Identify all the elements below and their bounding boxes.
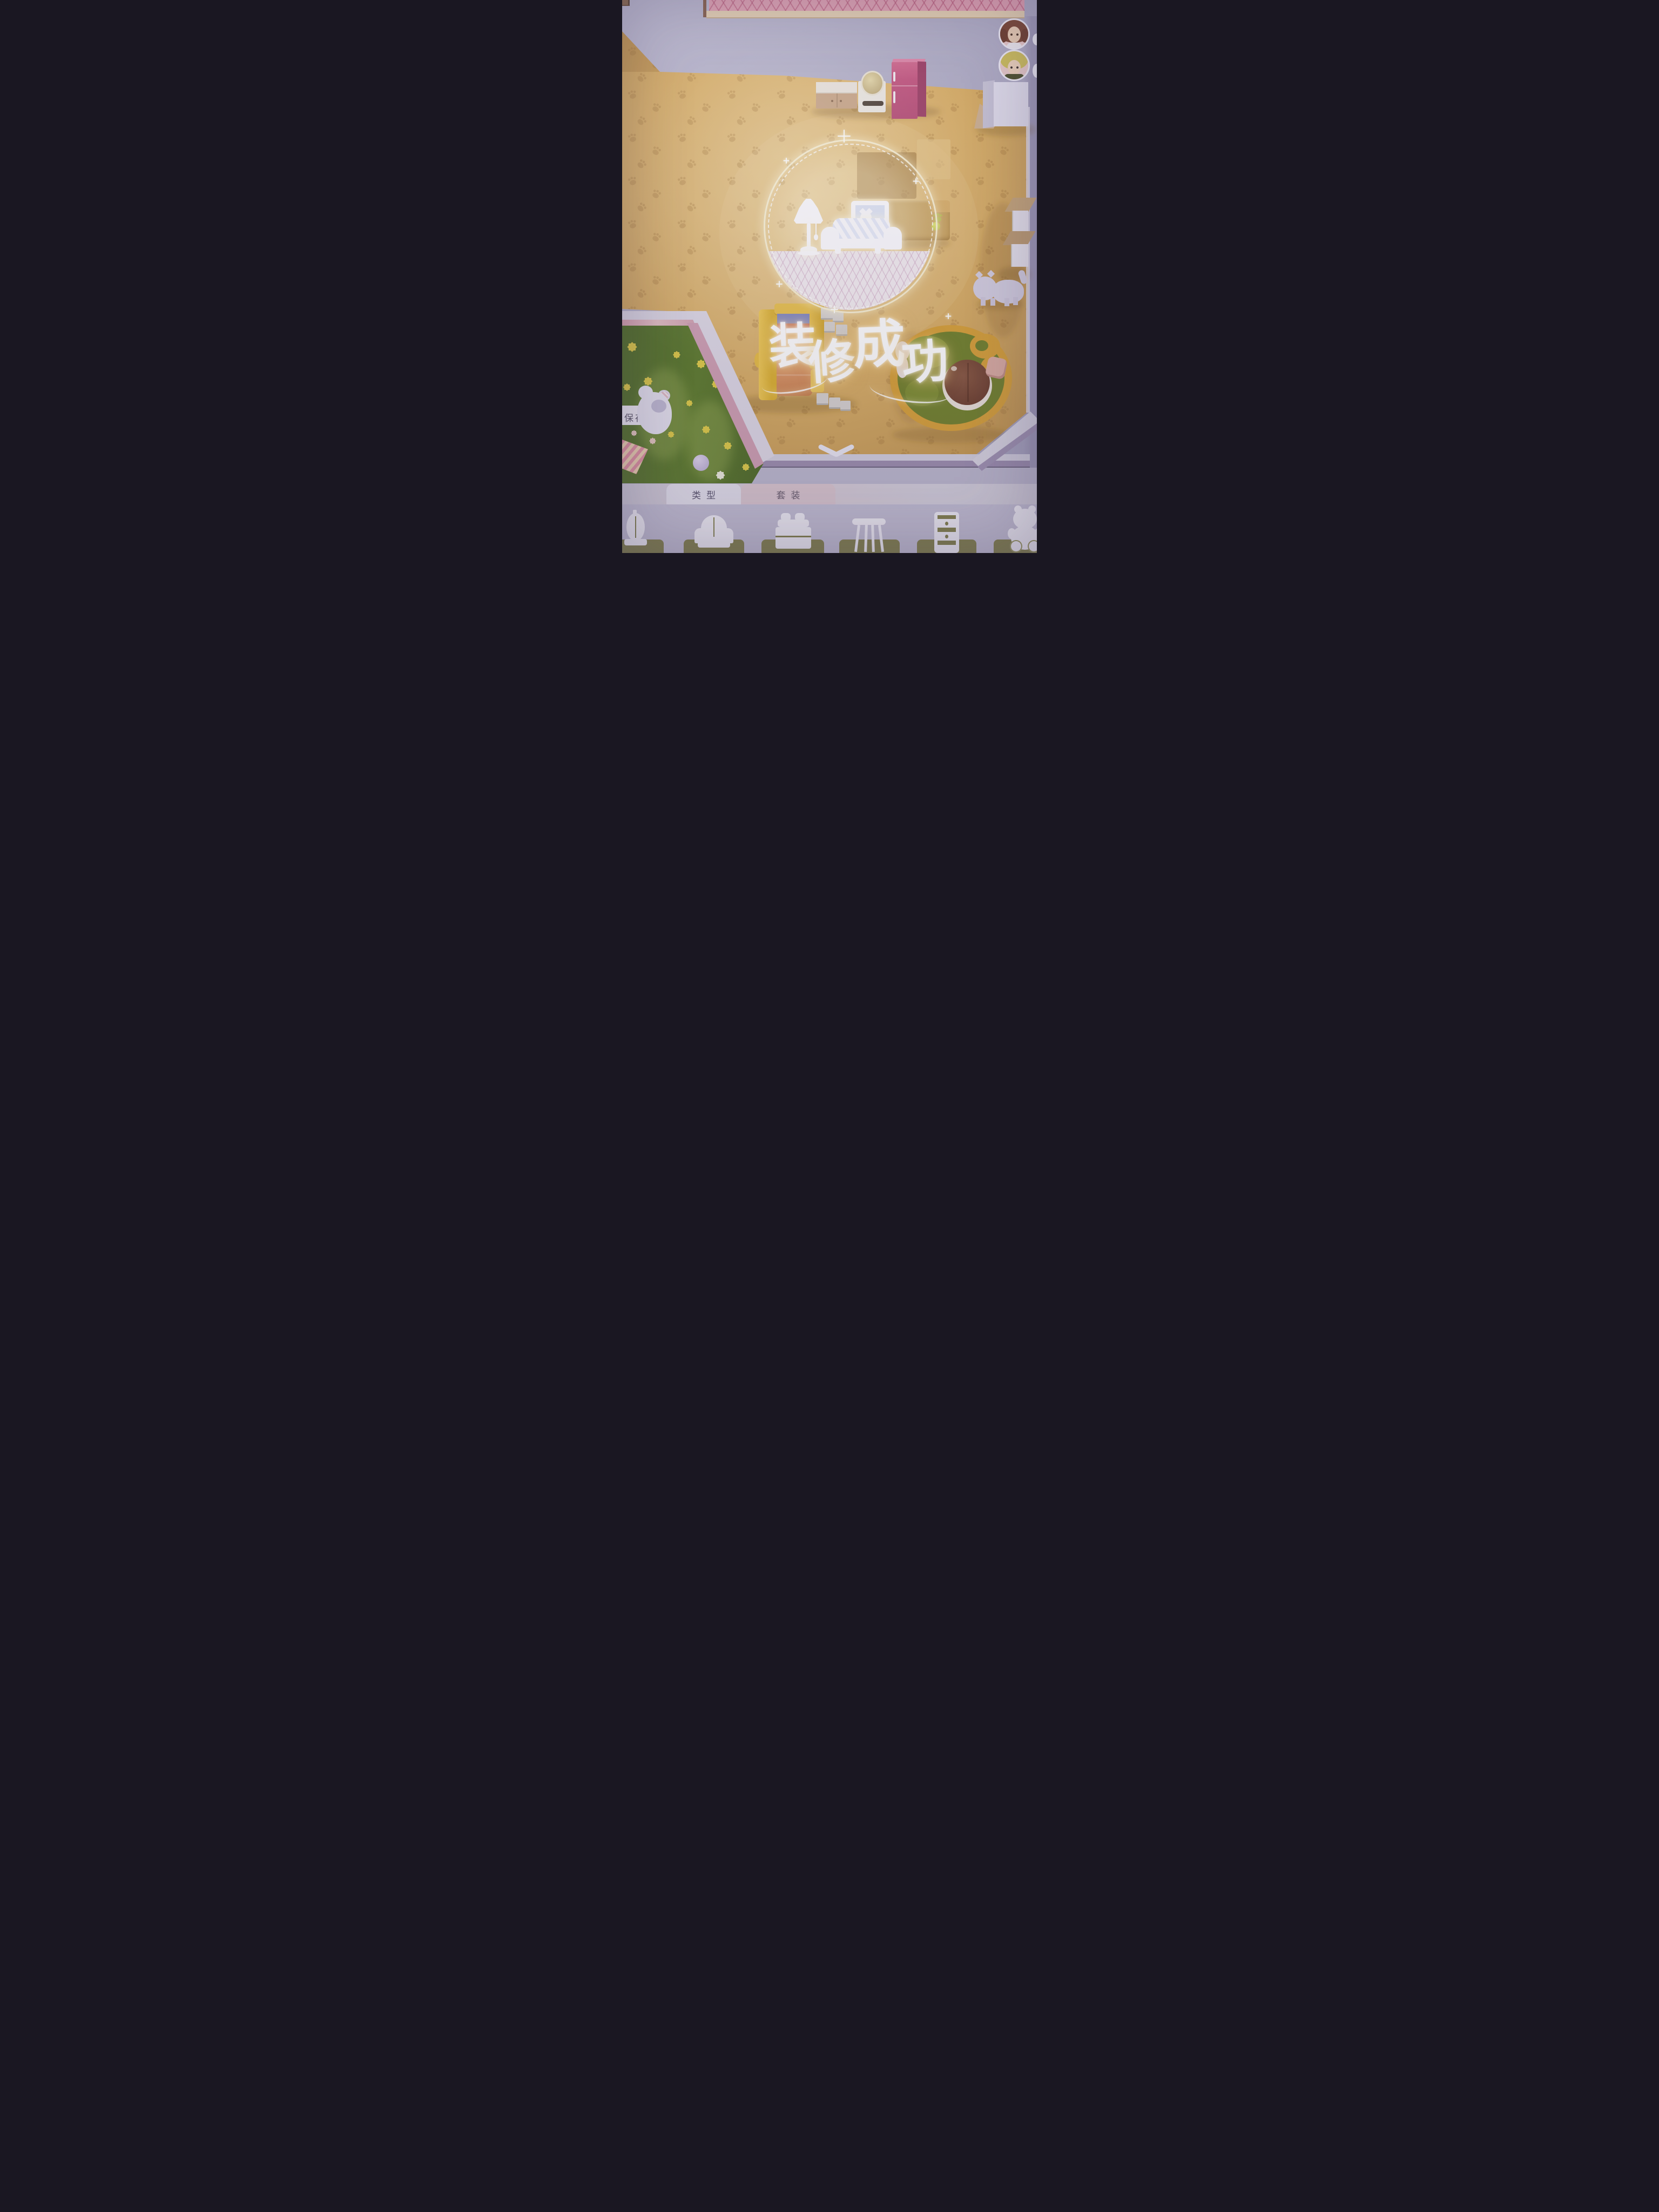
teddy-icon-leg bbox=[1028, 540, 1037, 552]
dresser-icon-knob bbox=[945, 535, 948, 538]
boy-face bbox=[1008, 60, 1021, 75]
kitchen-counter[interactable] bbox=[816, 82, 857, 109]
flower bbox=[674, 352, 679, 358]
emblem-ring bbox=[764, 139, 938, 313]
game-screen: 装 修 成 功 保存 类型 套装 bbox=[622, 0, 1037, 553]
corner-cabinet-side bbox=[983, 80, 995, 128]
bear-button[interactable] bbox=[637, 392, 672, 434]
flower bbox=[703, 427, 709, 433]
girl-avatar[interactable] bbox=[999, 18, 1030, 50]
girl-collar bbox=[1007, 43, 1022, 49]
bed-icon-headboard bbox=[778, 520, 809, 527]
box-stack[interactable] bbox=[1012, 211, 1028, 231]
cage-lamp-top bbox=[633, 510, 637, 514]
cat-leg bbox=[990, 298, 995, 306]
eye bbox=[1010, 33, 1013, 36]
flower bbox=[632, 431, 636, 435]
brick-block[interactable] bbox=[817, 393, 828, 405]
counter-knob bbox=[831, 100, 833, 102]
flower bbox=[698, 361, 704, 367]
armchair-seat bbox=[698, 538, 730, 548]
sparkle-icon bbox=[839, 130, 849, 143]
boy-avatar[interactable] bbox=[999, 50, 1030, 81]
tab-type[interactable]: 类型 bbox=[666, 484, 741, 504]
table-icon-top bbox=[852, 518, 886, 525]
brick-block[interactable] bbox=[829, 397, 840, 409]
sparkle-icon bbox=[784, 158, 788, 164]
tab-bar: 类型 套装 bbox=[622, 484, 1037, 504]
fridge-handle bbox=[893, 91, 895, 103]
sparkle-icon bbox=[832, 306, 837, 313]
table-seam bbox=[967, 363, 969, 402]
cage-lamp-base bbox=[624, 539, 647, 545]
washer-slot bbox=[862, 101, 884, 106]
cat-leg bbox=[1004, 298, 1009, 306]
flower bbox=[687, 401, 692, 406]
eye bbox=[1010, 66, 1013, 69]
basket[interactable] bbox=[861, 71, 884, 96]
pink-fridge[interactable] bbox=[892, 62, 918, 119]
sparkle-icon bbox=[914, 178, 918, 184]
brick-block[interactable] bbox=[824, 322, 835, 333]
counter-top bbox=[816, 82, 857, 93]
flower bbox=[713, 381, 719, 387]
flower bbox=[645, 378, 651, 385]
fridge-handle bbox=[893, 72, 895, 82]
flower bbox=[725, 443, 731, 449]
wall-border-pink-stripe bbox=[622, 320, 701, 326]
sparkle-icon bbox=[777, 281, 781, 287]
fridge-side bbox=[918, 62, 926, 117]
wooden-table[interactable] bbox=[945, 360, 990, 405]
catalog-tile-table[interactable] bbox=[839, 539, 900, 553]
eye bbox=[1016, 66, 1019, 69]
flower bbox=[650, 439, 655, 443]
counter-knob bbox=[840, 100, 842, 102]
table-highlight bbox=[951, 366, 957, 371]
tab-suit[interactable]: 套装 bbox=[741, 484, 835, 504]
counter-door-split bbox=[837, 93, 838, 107]
corner-cabinet[interactable] bbox=[994, 82, 1028, 126]
tab-type-label: 类型 bbox=[686, 488, 721, 501]
bear-shade bbox=[651, 400, 666, 413]
rug-pattern bbox=[975, 340, 988, 351]
cat-leg bbox=[981, 297, 986, 306]
flower bbox=[629, 343, 636, 350]
flower bbox=[624, 385, 630, 390]
sparkle-icon bbox=[946, 313, 950, 319]
box-stack[interactable] bbox=[1011, 244, 1028, 267]
bed-icon-seam bbox=[775, 536, 811, 537]
white-cat[interactable] bbox=[1013, 297, 1018, 305]
dresser-icon-drawer bbox=[938, 545, 956, 551]
eye bbox=[1016, 33, 1019, 36]
fridge-divider bbox=[892, 85, 918, 86]
bed-icon-body bbox=[775, 527, 811, 549]
lavender-ball bbox=[693, 455, 709, 471]
success-char: 成 bbox=[852, 318, 906, 371]
teddy-icon-leg bbox=[1010, 540, 1022, 552]
flower bbox=[669, 432, 673, 437]
flower bbox=[717, 472, 724, 478]
girl-face bbox=[1008, 26, 1021, 43]
armchair-seam bbox=[713, 517, 714, 537]
flower bbox=[743, 464, 748, 470]
cage-lamp-bar bbox=[635, 516, 636, 538]
dresser-icon-knob bbox=[945, 522, 948, 525]
brick-block[interactable] bbox=[840, 401, 851, 411]
wall-border-horizontal bbox=[622, 311, 702, 321]
tab-suit-label: 套装 bbox=[771, 488, 806, 501]
collapse-chevron-icon[interactable] bbox=[818, 444, 854, 460]
garden-light bbox=[687, 401, 733, 482]
